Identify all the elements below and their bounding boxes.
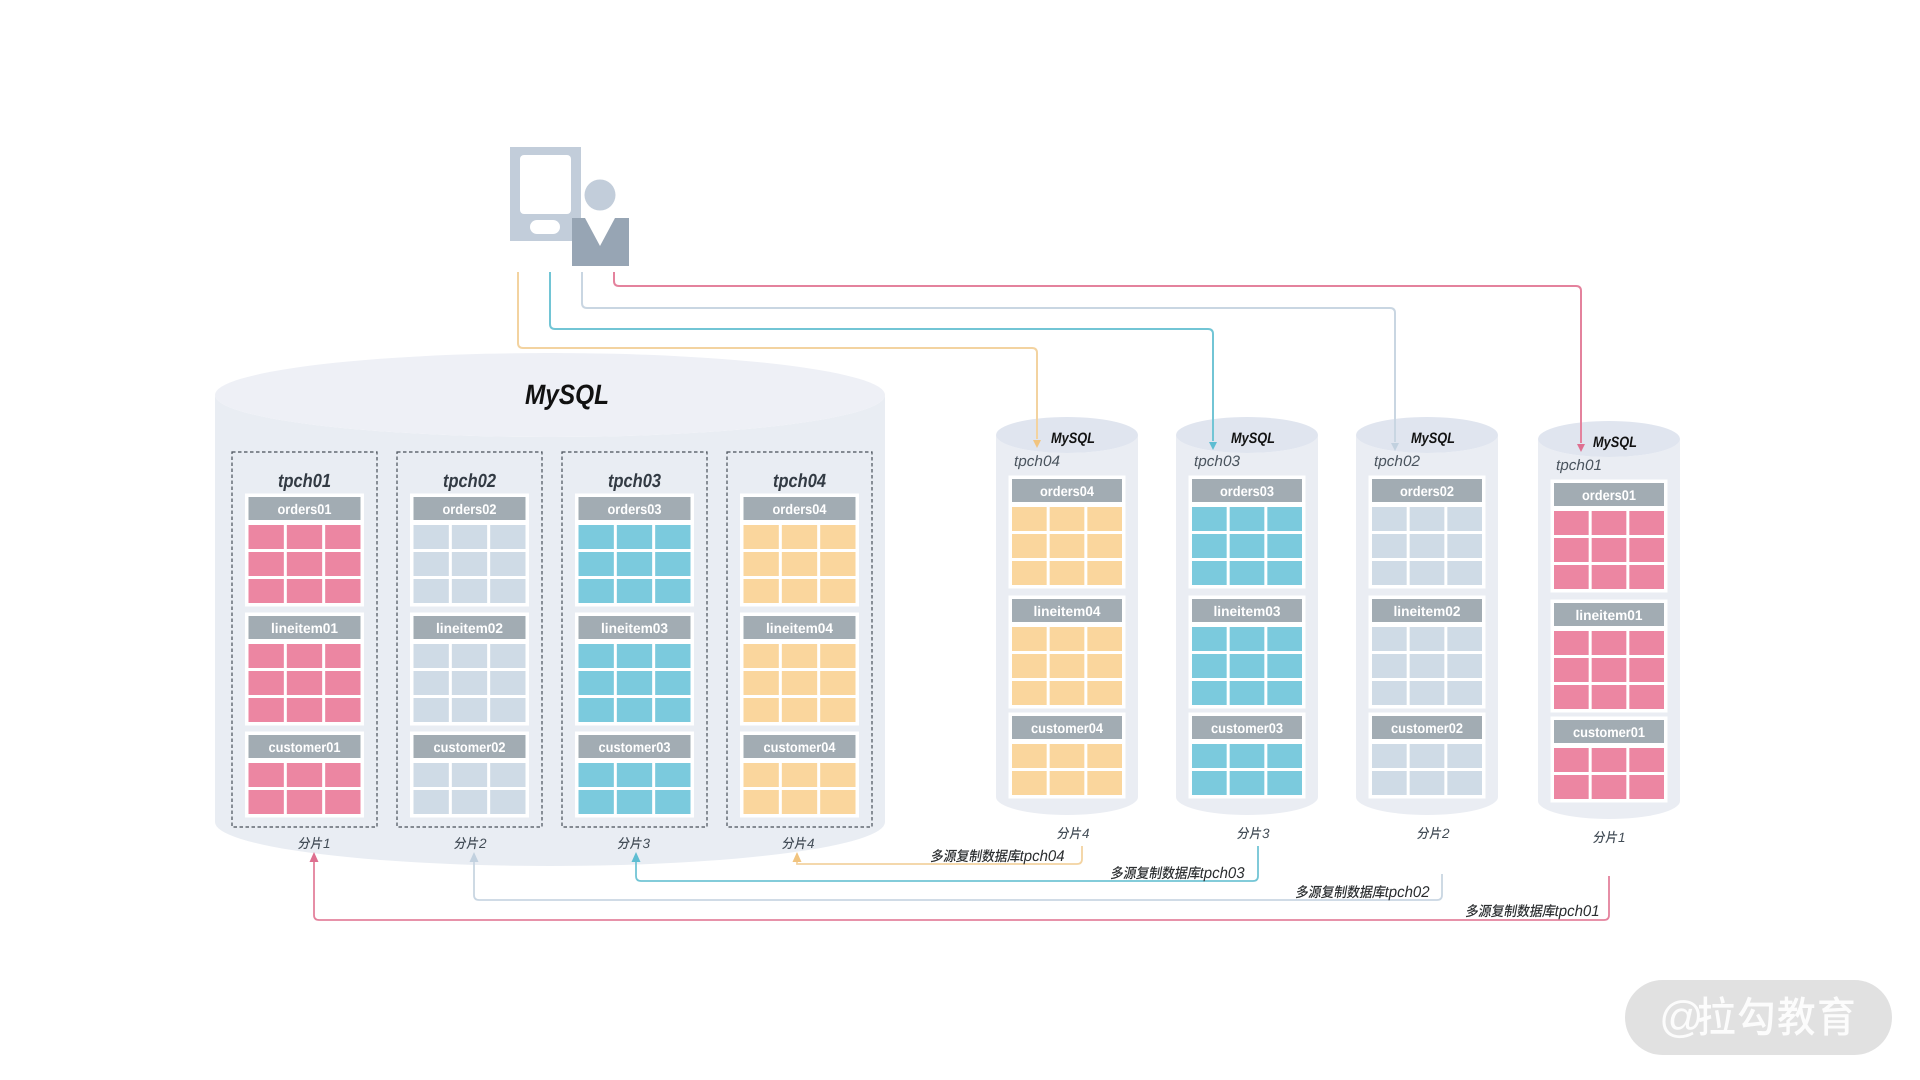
svg-text:customer04: customer04 — [1031, 720, 1103, 736]
svg-text:tpch04: tpch04 — [1020, 848, 1065, 865]
svg-text:2: 2 — [478, 836, 487, 851]
svg-text:MySQL: MySQL — [1593, 434, 1637, 451]
svg-text:4: 4 — [807, 836, 815, 851]
svg-text:orders02: orders02 — [443, 501, 497, 517]
svg-text:lineitem02: lineitem02 — [436, 620, 503, 636]
svg-text:orders02: orders02 — [1400, 483, 1454, 499]
svg-text:tpch04: tpch04 — [773, 471, 826, 492]
svg-text:lineitem03: lineitem03 — [1214, 603, 1281, 619]
svg-text:4: 4 — [1082, 826, 1090, 841]
svg-text:3: 3 — [643, 836, 651, 851]
svg-text:lineitem01: lineitem01 — [271, 620, 338, 636]
svg-text:lineitem03: lineitem03 — [601, 620, 668, 636]
svg-text:MySQL: MySQL — [1051, 430, 1095, 447]
svg-text:MySQL: MySQL — [525, 379, 609, 410]
svg-text:lineitem02: lineitem02 — [1394, 603, 1461, 619]
svg-text:customer03: customer03 — [1211, 720, 1283, 736]
svg-text:MySQL: MySQL — [1411, 430, 1455, 447]
svg-text:1: 1 — [323, 836, 331, 851]
svg-text:MySQL: MySQL — [1231, 430, 1275, 447]
svg-text:customer01: customer01 — [269, 739, 341, 755]
svg-text:customer04: customer04 — [764, 739, 836, 755]
svg-text:orders04: orders04 — [773, 501, 827, 517]
svg-text:tpch02: tpch02 — [1385, 884, 1430, 901]
svg-text:orders04: orders04 — [1040, 483, 1094, 499]
svg-text:customer02: customer02 — [1391, 720, 1463, 736]
svg-text:@: @ — [1659, 993, 1704, 1042]
svg-text:tpch03: tpch03 — [1200, 865, 1245, 882]
svg-text:tpch01: tpch01 — [278, 471, 331, 492]
svg-text:orders03: orders03 — [1220, 483, 1274, 499]
svg-text:tpch03: tpch03 — [608, 471, 661, 492]
svg-text:1: 1 — [1618, 830, 1626, 845]
svg-text:tpch02: tpch02 — [443, 471, 496, 492]
svg-text:lineitem04: lineitem04 — [1034, 603, 1101, 619]
svg-text:tpch03: tpch03 — [1194, 453, 1241, 470]
svg-text:orders03: orders03 — [608, 501, 662, 517]
svg-text:customer01: customer01 — [1573, 724, 1645, 740]
svg-text:3: 3 — [1262, 826, 1270, 841]
svg-text:lineitem01: lineitem01 — [1576, 607, 1643, 623]
svg-text:orders01: orders01 — [278, 501, 332, 517]
svg-text:tpch02: tpch02 — [1374, 453, 1421, 470]
svg-text:tpch01: tpch01 — [1555, 903, 1600, 920]
svg-text:customer02: customer02 — [434, 739, 506, 755]
svg-text:orders01: orders01 — [1582, 487, 1636, 503]
svg-text:customer03: customer03 — [599, 739, 671, 755]
svg-text:lineitem04: lineitem04 — [766, 620, 833, 636]
svg-text:tpch01: tpch01 — [1556, 457, 1602, 474]
svg-text:tpch04: tpch04 — [1014, 453, 1060, 470]
svg-text:2: 2 — [1441, 826, 1450, 841]
